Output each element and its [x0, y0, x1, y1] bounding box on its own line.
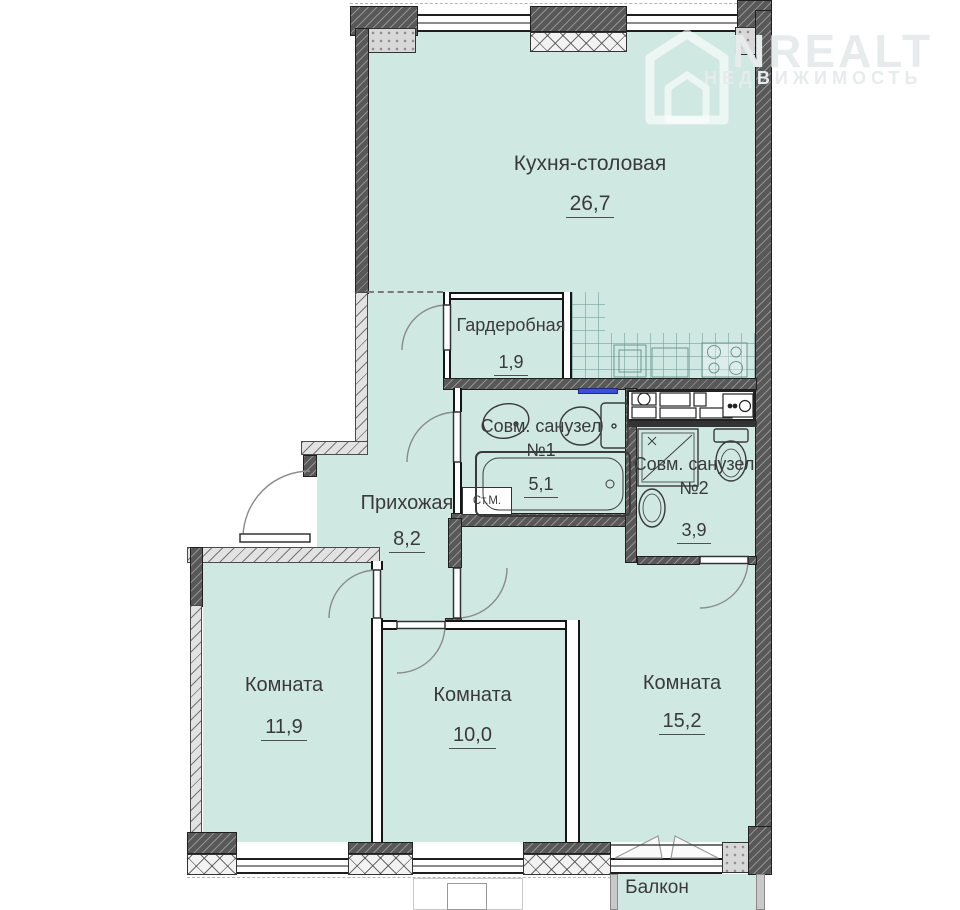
wall-wardrobe-left-a	[443, 292, 451, 305]
window-balcony-door-sill	[611, 858, 722, 874]
room-label-kitchen: Кухня-столовая	[465, 152, 715, 176]
window-room-middle	[413, 858, 523, 874]
outer-top-line	[350, 3, 772, 4]
window-room-left	[237, 858, 348, 874]
watermark: NREALT НЕДВИЖИМОСТЬ	[640, 20, 960, 130]
room-area-bath2: 3,9	[633, 518, 755, 544]
room-label-room-left: Комната	[194, 674, 374, 697]
wall-bath1-left-a	[453, 388, 462, 412]
balcony-wall-right	[756, 874, 765, 910]
kitchen-tiles-row	[572, 333, 757, 383]
wall-bath2-bottom-a	[637, 556, 700, 565]
entrance-door-arc	[243, 471, 310, 538]
kitchen-counter	[627, 390, 755, 421]
wall-room-left-top-pier	[190, 547, 203, 607]
watermark-house-icon-inner	[668, 75, 706, 120]
room-label-wardrobe: Гардеробная	[448, 313, 574, 337]
wall-bottom-pier2-insulation	[348, 854, 413, 875]
wall-top-pier-mid	[530, 6, 627, 32]
room-area-wardrobe: 1,9	[448, 350, 574, 376]
room-area-bath1: 5,1	[478, 472, 604, 498]
wall-entry-step-h	[301, 441, 368, 455]
wall-wardrobe-top	[443, 292, 572, 300]
wall-bottom-corner-right	[748, 826, 772, 875]
wall-room-middle-top-b	[445, 620, 580, 630]
room-label-room-right: Комната	[598, 672, 766, 695]
wall-hall-left	[355, 292, 368, 455]
wall-bottom-pier3-insulation	[523, 854, 611, 875]
room-label-hallway: Прихожая	[342, 492, 472, 515]
room-area-hallway: 8,2	[342, 528, 472, 553]
floor-plan: Ст.М.	[0, 0, 960, 910]
room-label-bath2: Совм. санузел №2	[633, 452, 755, 500]
column-top-left	[368, 28, 416, 53]
wall-right	[755, 10, 772, 875]
room-label-room-middle: Комната	[390, 684, 555, 707]
wall-room-left-right-a	[371, 561, 383, 570]
wall-bath2-top	[627, 421, 757, 427]
entrance-door-leaf	[240, 534, 310, 542]
wall-bottom-pier2	[348, 842, 413, 854]
neighbor-balcony-inner	[447, 883, 487, 910]
room-area-room-middle: 10,0	[390, 724, 555, 749]
wall-entry-step-v	[303, 455, 317, 477]
outer-bottom-line	[187, 877, 611, 878]
wall-bath1-bottom	[451, 513, 637, 527]
wall-bath2-bottom-b	[748, 556, 757, 565]
wall-bottom-pier3	[523, 842, 611, 854]
wall-kitchen-left	[355, 28, 369, 294]
room-area-room-right: 15,2	[598, 710, 766, 735]
wall-top-pier-mid-insulation	[530, 32, 627, 52]
kitchen-hall-open-boundary	[368, 291, 443, 293]
bath1-mirror	[578, 388, 618, 394]
wall-bottom-pier1-insulation	[187, 854, 237, 875]
wall-room-divider	[565, 620, 580, 842]
window-kitchen-1	[418, 14, 530, 32]
room-label-balcony: Балкон	[602, 877, 712, 899]
wall-bottom-pier1	[187, 832, 237, 854]
room-label-bath1: Совм. санузел №1	[478, 414, 604, 462]
watermark-subtitle: НЕДВИЖИМОСТЬ	[704, 68, 922, 89]
room-area-kitchen: 26,7	[465, 192, 715, 218]
wall-room-middle-top-a	[383, 620, 397, 630]
room-area-room-left: 11,9	[194, 716, 374, 741]
